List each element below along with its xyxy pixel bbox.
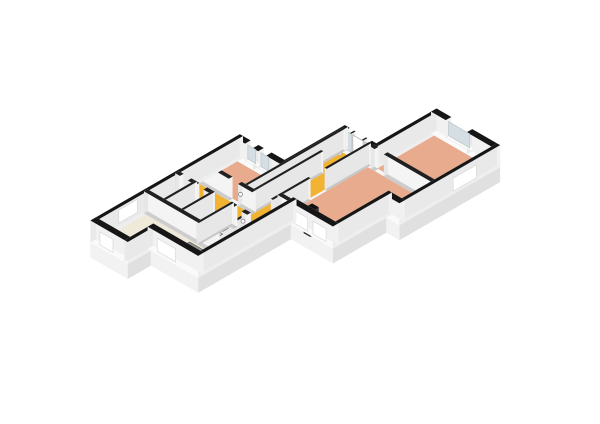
door-handle-bedroom-1 xyxy=(239,192,243,196)
floorplan-3d-render xyxy=(0,0,600,424)
floorplan-figure xyxy=(0,0,600,424)
door-handle-bathroom xyxy=(241,219,245,223)
floorplan-viewport xyxy=(0,0,600,424)
